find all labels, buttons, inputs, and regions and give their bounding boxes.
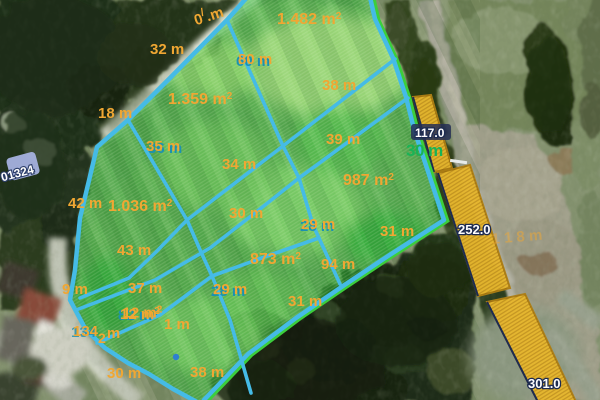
svg-text:1.036 m2: 1.036 m2: [108, 198, 173, 215]
svg-text:37 m: 37 m: [128, 280, 162, 297]
svg-text:31 m: 31 m: [288, 293, 322, 310]
svg-text:29 m: 29 m: [301, 216, 335, 233]
svg-text:42 m: 42 m: [68, 195, 102, 212]
svg-text:301.0: 301.0: [528, 376, 561, 391]
svg-text:252.0: 252.0: [458, 222, 491, 237]
svg-text:43 m: 43 m: [117, 242, 151, 259]
svg-text:18 m: 18 m: [98, 105, 132, 122]
svg-text:39 m: 39 m: [326, 131, 360, 148]
svg-text:30 m: 30 m: [406, 141, 443, 160]
svg-text:80 m: 80 m: [238, 51, 272, 68]
svg-text:117.0: 117.0: [415, 126, 445, 140]
svg-text:1.482 m2: 1.482 m2: [277, 11, 342, 28]
svg-text:32 m: 32 m: [150, 41, 184, 58]
svg-text:31 m: 31 m: [380, 223, 414, 240]
svg-text:38 m: 38 m: [190, 364, 224, 381]
svg-text:9 m: 9 m: [62, 281, 88, 298]
svg-text:1 m: 1 m: [164, 316, 190, 333]
svg-text:1.359 m2: 1.359 m2: [168, 91, 233, 108]
svg-text:987 m2: 987 m2: [343, 172, 394, 189]
svg-text:34 m: 34 m: [222, 156, 256, 173]
svg-text:35 m: 35 m: [146, 138, 180, 155]
svg-text:38 m: 38 m: [322, 77, 356, 94]
svg-text:30 m: 30 m: [107, 365, 141, 382]
svg-text:12 m2: 12 m2: [123, 305, 163, 322]
svg-text:30 m: 30 m: [229, 205, 263, 222]
svg-text:94 m: 94 m: [321, 256, 355, 273]
svg-text:873 m2: 873 m2: [250, 251, 301, 268]
svg-text:29 m: 29 m: [213, 281, 247, 298]
